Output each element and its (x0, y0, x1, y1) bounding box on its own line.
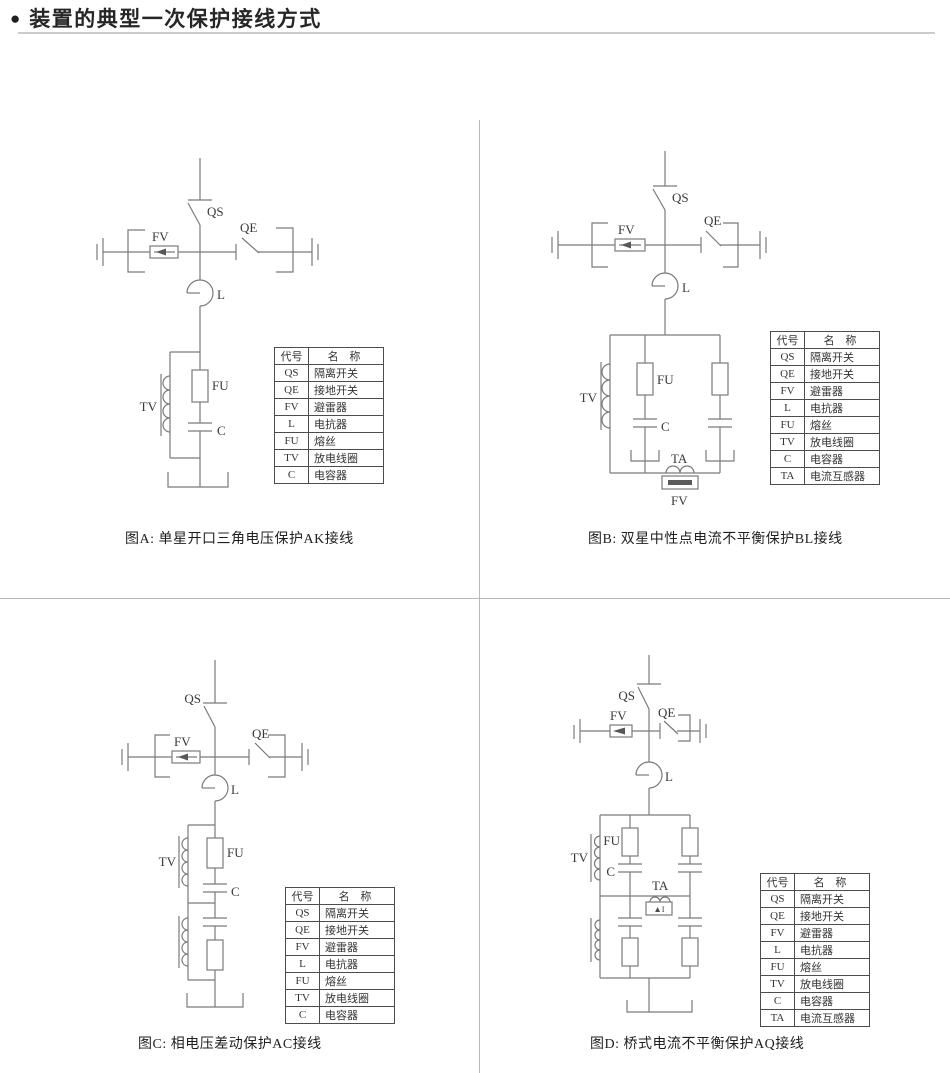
legend-cell-code: QE (275, 382, 309, 399)
label-c: C (606, 864, 615, 879)
label-c: C (217, 423, 226, 438)
tv-discharge-coil (591, 834, 600, 882)
table-row: 代号 名 称 (761, 874, 870, 891)
right-branch-lower (678, 896, 702, 978)
legend-cell-name: 电容器 (805, 451, 880, 468)
legend-cell-name: 电容器 (320, 1007, 395, 1024)
legend-header-name: 名 称 (805, 332, 880, 349)
page-header: ● 装置的典型一次保护接线方式 (10, 3, 322, 33)
table-row: L 电抗器 (286, 956, 395, 973)
table-row: L 电抗器 (275, 416, 384, 433)
qe-earth-switch (645, 223, 760, 267)
fuse-fu (637, 363, 653, 395)
legend-cell-code: C (286, 1007, 320, 1024)
branch-2 (706, 335, 734, 473)
legend-cell-name: 接地开关 (320, 922, 395, 939)
figure-b-caption: 图B: 双星中性点电流不平衡保护BL接线 (588, 528, 843, 548)
legend-cell-name: 熔丝 (309, 433, 384, 450)
legend-cell-name: 放电线圈 (309, 450, 384, 467)
ground-right-icon (302, 743, 308, 771)
legend-cell-code: TA (761, 1010, 795, 1027)
legend-cell-name: 隔离开关 (309, 365, 384, 382)
legend-cell-name: 放电线圈 (320, 990, 395, 1007)
label-fv: FV (152, 229, 169, 244)
table-row: FU 熔丝 (286, 973, 395, 990)
bullet-icon: ● (10, 10, 20, 27)
legend-cell-name: 避雷器 (320, 939, 395, 956)
label-fu: FU (227, 845, 244, 860)
figure-a-caption: 图A: 单星开口三角电压保护AK接线 (125, 528, 354, 548)
tv-discharge-coil (601, 362, 610, 430)
ta-delta-i-symbol: ▲I (653, 904, 664, 914)
label-qs: QS (207, 204, 224, 219)
label-ta: TA (652, 878, 669, 893)
legend-cell-name: 熔丝 (805, 417, 880, 434)
legend-header-code: 代号 (761, 874, 795, 891)
label-l: L (231, 782, 239, 797)
bracket-right (276, 228, 293, 272)
legend-cell-code: FV (286, 939, 320, 956)
label-qs: QS (672, 190, 689, 205)
table-row: C 电容器 (275, 467, 384, 484)
legend-cell-code: L (761, 942, 795, 959)
table-row: TV 放电线圈 (761, 976, 870, 993)
label-tv: TV (140, 399, 158, 414)
legend-cell-code: FU (286, 973, 320, 990)
fuse-fu (712, 363, 728, 395)
table-row: 代号 名 称 (771, 332, 880, 349)
label-fu: FU (657, 372, 674, 387)
table-row: 代号 名 称 (275, 348, 384, 365)
tv-discharge-coil (161, 374, 170, 436)
legend-header-code: 代号 (286, 888, 320, 905)
legend-cell-name: 电抗器 (805, 400, 880, 417)
figure-d-caption: 图D: 桥式电流不平衡保护AQ接线 (590, 1033, 804, 1053)
label-l: L (217, 287, 225, 302)
capacitor-c (188, 423, 212, 458)
label-ta: TA (671, 451, 688, 466)
legend-cell-code: TV (771, 434, 805, 451)
legend-header-name: 名 称 (795, 874, 870, 891)
table-row: QE 接地开关 (771, 366, 880, 383)
legend-cell-code: QS (771, 349, 805, 366)
rack-earth (168, 458, 228, 487)
label-qs: QS (618, 688, 635, 703)
figure-c-caption: 图C: 相电压差动保护AC接线 (138, 1033, 322, 1053)
table-row: QS 隔离开关 (761, 891, 870, 908)
legend-table-b: 代号 名 称 QS 隔离开关 QE 接地开关 FV 避雷器 L 电抗器 FU 熔… (770, 331, 880, 485)
fv-arrester (150, 246, 178, 258)
ground-left-icon (574, 719, 580, 743)
label-fu: FU (212, 378, 229, 393)
legend-cell-code: FV (275, 399, 309, 416)
legend-header-name: 名 称 (309, 348, 384, 365)
capacitor-bank-frame (170, 352, 200, 458)
legend-cell-name: 电容器 (309, 467, 384, 484)
table-row: QE 接地开关 (761, 908, 870, 925)
legend-cell-code: C (771, 451, 805, 468)
legend-header-code: 代号 (275, 348, 309, 365)
label-qe: QE (252, 726, 269, 741)
legend-cell-name: 电流互感器 (805, 468, 880, 485)
fuse-fu (207, 940, 223, 970)
fv-arrester (580, 725, 660, 737)
rack-earth (627, 978, 692, 1012)
legend-header-name: 名 称 (320, 888, 395, 905)
reactor-l (652, 245, 678, 335)
legend-cell-name: 熔丝 (795, 959, 870, 976)
legend-cell-name: 隔离开关 (805, 349, 880, 366)
legend-cell-code: QS (275, 365, 309, 382)
table-row: C 电容器 (771, 451, 880, 468)
legend-cell-name: 熔丝 (320, 973, 395, 990)
legend-cell-code: C (275, 467, 309, 484)
label-fv-neutral: FV (671, 493, 688, 508)
legend-cell-code: TV (761, 976, 795, 993)
branch-1 (631, 335, 659, 473)
ground-right-icon (700, 719, 706, 743)
right-branch-upper (678, 815, 702, 896)
upper-branch (203, 825, 227, 903)
title-underline (18, 32, 935, 34)
legend-table-c: 代号 名 称 QS 隔离开关 QE 接地开关 FV 避雷器 L 电抗器 FU 熔… (285, 887, 395, 1024)
table-row: C 电容器 (761, 993, 870, 1010)
legend-cell-code: L (275, 416, 309, 433)
ground-left-icon (122, 743, 128, 771)
lower-branch (203, 903, 227, 980)
page-title: 装置的典型一次保护接线方式 (29, 3, 322, 33)
fv-arrester (615, 239, 645, 251)
table-row: 代号 名 称 (286, 888, 395, 905)
legend-cell-name: 电抗器 (795, 942, 870, 959)
legend-table-d: 代号 名 称 QS 隔离开关 QE 接地开关 FV 避雷器 L 电抗器 FU 熔… (760, 873, 870, 1027)
table-row: FV 避雷器 (286, 939, 395, 956)
ground-right-icon (760, 231, 766, 259)
lower-coil (591, 918, 600, 962)
legend-cell-code: FV (761, 925, 795, 942)
legend-cell-name: 接地开关 (309, 382, 384, 399)
table-row: QS 隔离开关 (771, 349, 880, 366)
legend-cell-name: 接地开关 (805, 366, 880, 383)
reactor-l (636, 731, 662, 815)
fuse-fu (192, 352, 208, 423)
legend-cell-name: 电抗器 (320, 956, 395, 973)
legend-cell-code: QE (761, 908, 795, 925)
legend-cell-name: 避雷器 (309, 399, 384, 416)
ground-left-icon (552, 231, 558, 259)
ta-current-transformer (666, 466, 694, 473)
legend-cell-name: 避雷器 (805, 383, 880, 400)
mid-branch-lower (618, 896, 642, 978)
fv-arrester (172, 751, 200, 763)
table-row: TA 电流互感器 (771, 468, 880, 485)
legend-cell-code: QE (286, 922, 320, 939)
label-qs: QS (184, 691, 201, 706)
label-fu: FU (603, 833, 620, 848)
label-qe: QE (240, 220, 257, 235)
bracket-right (678, 715, 690, 741)
circuit-diagram-a: QS FV QE (0, 120, 479, 598)
table-row: QE 接地开关 (275, 382, 384, 399)
table-row: FU 熔丝 (761, 959, 870, 976)
label-tv: TV (571, 850, 589, 865)
reactor-l (202, 758, 228, 825)
label-qe: QE (658, 705, 675, 720)
table-row: FV 避雷器 (761, 925, 870, 942)
legend-cell-name: 隔离开关 (320, 905, 395, 922)
label-fv: FV (618, 222, 635, 237)
lower-coil (179, 916, 188, 968)
legend-cell-code: QS (761, 891, 795, 908)
legend-cell-name: 电流互感器 (795, 1010, 870, 1027)
legend-cell-name: 隔离开关 (795, 891, 870, 908)
legend-cell-name: 电容器 (795, 993, 870, 1010)
qs-disconnector (203, 703, 227, 758)
legend-cell-code: FV (771, 383, 805, 400)
table-row: C 电容器 (286, 1007, 395, 1024)
ground-right-icon (312, 238, 318, 266)
label-qe: QE (704, 213, 721, 228)
table-row: FV 避雷器 (275, 399, 384, 416)
table-row: QE 接地开关 (286, 922, 395, 939)
table-row: L 电抗器 (761, 942, 870, 959)
legend-cell-code: TV (286, 990, 320, 1007)
legend-cell-code: L (286, 956, 320, 973)
legend-cell-code: C (761, 993, 795, 1010)
label-l: L (682, 280, 690, 295)
legend-cell-name: 避雷器 (795, 925, 870, 942)
fuse-fu (682, 938, 698, 966)
bracket-right (268, 735, 285, 777)
table-row: TV 放电线圈 (275, 450, 384, 467)
table-row: QS 隔离开关 (275, 365, 384, 382)
legend-cell-code: L (771, 400, 805, 417)
label-tv: TV (580, 390, 598, 405)
bus-left (558, 223, 615, 267)
fuse-fu (622, 828, 638, 856)
legend-header-code: 代号 (771, 332, 805, 349)
bus-left (103, 230, 150, 272)
label-tv: TV (159, 854, 177, 869)
table-row: FU 熔丝 (275, 433, 384, 450)
legend-table-a: 代号 名 称 QS 隔离开关 QE 接地开关 FV 避雷器 L 电抗器 FU 熔… (274, 347, 384, 484)
label-c: C (231, 884, 240, 899)
table-row: QS 隔离开关 (286, 905, 395, 922)
legend-cell-name: 接地开关 (795, 908, 870, 925)
capacitor-bank-frame (610, 335, 720, 473)
label-fv: FV (174, 734, 191, 749)
bus-left (128, 735, 172, 777)
page: ● 装置的典型一次保护接线方式 QS FV (0, 0, 950, 1073)
table-row: FV 避雷器 (771, 383, 880, 400)
label-fv: FV (610, 708, 627, 723)
label-l: L (665, 769, 673, 784)
mid-branch-upper (618, 815, 642, 896)
fuse-fu (207, 838, 223, 868)
fv-neutral-arrester (662, 476, 698, 489)
legend-cell-name: 放电线圈 (805, 434, 880, 451)
fuse-fu (682, 828, 698, 856)
legend-cell-code: FU (771, 417, 805, 434)
legend-cell-code: TA (771, 468, 805, 485)
circuit-diagram-d: QS FV QE L (480, 598, 950, 1073)
legend-cell-code: FU (275, 433, 309, 450)
circuit-diagram-c: QS FV QE (0, 598, 479, 1073)
ground-left-icon (97, 238, 103, 266)
legend-cell-code: QS (286, 905, 320, 922)
label-c: C (661, 419, 670, 434)
legend-cell-code: FU (761, 959, 795, 976)
legend-cell-code: QE (771, 366, 805, 383)
legend-cell-name: 电抗器 (309, 416, 384, 433)
tv-discharge-coil (179, 836, 188, 888)
fuse-fu (622, 938, 638, 966)
table-row: TA 电流互感器 (761, 1010, 870, 1027)
rack-earth (187, 980, 243, 1007)
table-row: FU 熔丝 (771, 417, 880, 434)
bracket-left (128, 230, 145, 272)
reactor-l (187, 252, 213, 352)
legend-cell-code: TV (275, 450, 309, 467)
table-row: TV 放电线圈 (286, 990, 395, 1007)
table-row: TV 放电线圈 (771, 434, 880, 451)
table-row: L 电抗器 (771, 400, 880, 417)
legend-cell-name: 放电线圈 (795, 976, 870, 993)
bracket-left (155, 735, 170, 777)
